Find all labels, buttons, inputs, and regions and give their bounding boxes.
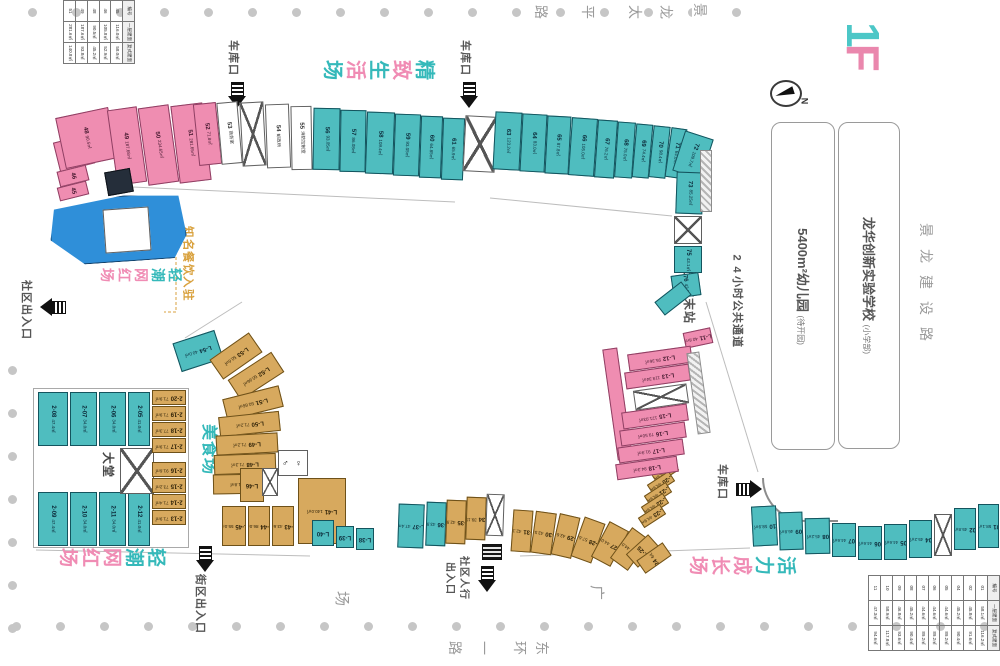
unit-2-08: 2-0847.4㎡: [38, 392, 68, 446]
unit-number: L-45: [235, 523, 246, 529]
unit-L-38: L-38: [356, 528, 374, 550]
table-cell: 02: [964, 576, 976, 601]
road-dot: [732, 8, 741, 17]
flow-label-char: 人: [458, 578, 468, 588]
unit-number: 2-14: [171, 499, 183, 505]
unit-66: 66105.0㎡: [568, 117, 598, 177]
table-cell: 187.6㎡: [75, 22, 87, 43]
unit-number: 51: [186, 129, 193, 136]
flow-label-char: 出: [444, 562, 454, 572]
flow-label-char: 口: [194, 622, 205, 633]
unit-number: 04: [925, 536, 932, 542]
flow-label-char: 车: [716, 464, 727, 475]
unit-area: 93.05㎡: [404, 141, 409, 157]
road-name-top: 平: [580, 4, 596, 20]
unit-number: 64: [531, 132, 537, 139]
road-name-bottom: 环: [512, 640, 528, 656]
unit-number: L-24: [652, 557, 664, 571]
unit-number: 46: [69, 172, 76, 180]
flow-label-char: 行: [458, 589, 468, 599]
zone-label-char: 通: [731, 324, 742, 335]
unit-65: 6587.8㎡: [544, 115, 571, 174]
unit-area: 47.4㎡: [51, 519, 56, 532]
unit-area: 44.6㎡: [859, 541, 872, 546]
zone-label-char: 轻: [168, 268, 182, 282]
unit-number: 48: [82, 127, 89, 135]
unit-number: L-49: [248, 440, 261, 447]
unit-area: 95.36㎡: [645, 356, 661, 363]
unit-55: 55消防控制室: [290, 106, 312, 170]
unit-area: 71.4㎡: [155, 499, 168, 504]
area-table-top_left: 编号一层建面复式建面45116.0㎡58.0㎡46105.8㎡52.9㎡4890…: [63, 0, 135, 64]
unit-number: 2-20: [171, 395, 183, 401]
unit-area: 64.85㎡: [428, 143, 433, 159]
zone-label-char: 场: [322, 60, 342, 80]
table-cell: 58.0㎡: [111, 43, 123, 64]
building-shape: [674, 216, 702, 244]
building-shape: [482, 544, 502, 560]
zone-label-char: 站: [683, 311, 695, 323]
table-cell: 140.8㎡: [64, 43, 76, 64]
table-header: 一层建面: [988, 601, 1000, 626]
zone-label-char: 2: [731, 254, 742, 260]
road-dot: [8, 366, 17, 375]
unit-area: 邮政所: [276, 134, 281, 148]
unit-area: 46.8㎡: [780, 529, 793, 534]
unit-2-17: 2-1771.9㎡: [152, 438, 186, 453]
flow-label-block-gate-bottom: 街区出入口: [194, 574, 205, 633]
unit-number: L-17: [652, 446, 665, 454]
road-dot: [804, 622, 813, 631]
table-cell: 93.6㎡: [892, 626, 904, 651]
unit-number: L-46: [246, 482, 258, 488]
unit-L-43: L-4343.6㎡: [272, 506, 294, 546]
zone-label-char: 小: [731, 276, 742, 287]
unit-area: 71.2㎡: [236, 422, 250, 428]
zone-label-qingchao-lower: 轻潮网红场: [58, 548, 165, 567]
road-name-right: 路: [918, 326, 934, 342]
zone-label-char: 成: [732, 556, 751, 575]
unit-number: 07: [848, 537, 855, 543]
table-cell: 45.2㎡: [904, 601, 916, 626]
table-cell: 52.9㎡: [99, 43, 111, 64]
unit-area: 123.2㎡: [505, 137, 510, 153]
unit-area: 43.1㎡: [686, 257, 691, 270]
flow-label-char: 入: [20, 316, 31, 327]
unit-area: 87.8㎡: [555, 143, 560, 156]
zone-label-char: 美: [200, 424, 216, 440]
zone-label-char: 场: [58, 548, 77, 567]
unit-L-34: L-3439.15㎡: [465, 497, 486, 541]
unit-number: 45: [69, 187, 76, 195]
unit-area: 41.0㎡: [137, 519, 142, 532]
unit-number: L-18: [648, 463, 661, 471]
unit-area: 86.0㎡: [248, 524, 258, 529]
unit-number: 2-17: [171, 443, 183, 449]
unit-number: 49: [122, 132, 129, 139]
unit-54: 54邮政所: [265, 104, 291, 169]
zone-label-char: 网: [134, 268, 148, 282]
unit-number: 2-05: [136, 405, 142, 417]
road-dot: [292, 8, 301, 17]
unit-area: 39.15㎡: [465, 516, 477, 521]
unit-number: L-15: [659, 411, 672, 419]
unit-area: 71.9㎡: [155, 443, 168, 448]
unit-06: 0644.6㎡: [858, 526, 882, 560]
unit-number: 06: [874, 540, 881, 546]
road-dot: [8, 452, 17, 461]
unit-area: 187.68㎡: [124, 141, 131, 160]
table-cell: 117.8㎡: [880, 626, 892, 651]
table-cell: 93.8㎡: [75, 43, 87, 64]
flow-label-char: 车: [227, 40, 238, 51]
building-shape: [239, 101, 266, 166]
unit-number: 66: [580, 135, 586, 142]
unit-area: 43.5㎡: [530, 529, 543, 535]
road-name-bottom: 东: [534, 640, 550, 656]
zone-label-char: 轻: [146, 548, 165, 567]
unit-number: 72: [692, 142, 700, 150]
unit-number: 2-19: [171, 411, 183, 417]
unit-number: 70: [657, 141, 664, 148]
building-shape: [485, 494, 504, 537]
school-sublabel: (小学部): [862, 325, 871, 354]
school-block: 龙华创新实验学校 (小学部): [838, 122, 900, 449]
unit-area: 86.08㎡: [351, 137, 356, 153]
unit-area: 74.4㎡: [639, 149, 645, 163]
unit-area: 45.8㎡: [954, 527, 967, 532]
unit-area: 85.25㎡: [687, 189, 692, 205]
road-dot: [408, 622, 417, 631]
unit-area: 93.05㎡: [324, 135, 329, 151]
unit-area: 119.34㎡: [641, 374, 659, 381]
zone-label-huoli-chengzhang: 活力成长场: [688, 556, 795, 575]
flow-label-char: 口: [20, 328, 31, 339]
arrow-down-icon: [196, 546, 214, 572]
flow-label-char: 区: [20, 292, 31, 303]
floor-logo-f: F: [837, 44, 889, 68]
zone-label-char: 入: [181, 276, 193, 288]
unit-area: 71.2㎡: [233, 442, 246, 447]
unit-area: 42.9㎡: [445, 519, 455, 524]
table-cell: 58.9㎡: [880, 601, 892, 626]
zone-label-char: 堂: [102, 465, 114, 477]
flow-label-pedestrian-gate-2: 出入口: [444, 562, 454, 594]
table-cell: 05: [940, 576, 952, 601]
unit-area: 77.3㎡: [155, 427, 168, 432]
zone-label-char: 潮: [151, 268, 165, 282]
road-name-right: 设: [918, 300, 934, 316]
unit-area: 71.9㎡: [155, 411, 168, 416]
unit-number: L-44: [260, 523, 270, 529]
table-cell: 10: [880, 576, 892, 601]
unit-59: 5993.05㎡: [393, 114, 421, 177]
unit-area: 45.2㎡: [910, 537, 923, 542]
unit-L-44: L-4486.0㎡: [248, 506, 270, 546]
floor-logo-1: 1: [837, 22, 889, 44]
table-cell: 45: [111, 1, 123, 22]
building-shape: [686, 351, 710, 434]
unit-number: 2-11: [110, 506, 116, 518]
table-cell: 94.6㎡: [869, 626, 881, 651]
unit-02: 0245.8㎡: [954, 508, 976, 550]
unit-number: L-11: [699, 332, 712, 340]
flow-label-char: 出: [194, 598, 205, 609]
unit-area: 58.9㎡: [753, 524, 766, 529]
road-dot: [600, 8, 609, 17]
table-cell: 281.6㎡: [64, 22, 76, 43]
road-dot: [232, 622, 241, 631]
unit-area: 65.9㎡: [450, 147, 455, 160]
flow-label-char: 口: [444, 584, 454, 594]
road-name-bottom: 一: [476, 640, 492, 656]
table-cell: 11: [869, 576, 881, 601]
unit-57: 5786.08㎡: [339, 110, 366, 172]
table-header: 编号: [988, 576, 1000, 601]
zone-label-char: 4: [731, 266, 742, 272]
road-name-top: 太: [627, 4, 643, 20]
unit-number: L-39: [339, 534, 351, 540]
table-cell: 89.2㎡: [940, 626, 952, 651]
zone-label-char: 场: [688, 556, 707, 575]
unit-area: 40.6㎡: [684, 336, 698, 343]
unit-area: 47.4㎡: [51, 419, 56, 432]
unit-area: 45.2㎡: [806, 534, 819, 539]
unit-60: 6064.85㎡: [419, 116, 443, 179]
flow-label-community-gate-left: 社区出入口: [20, 280, 31, 339]
unit-area: 83.0㎡: [531, 141, 536, 154]
unit-number: 55: [298, 122, 304, 129]
table-cell: 04: [952, 576, 964, 601]
unit-2-18: 2-1877.3㎡: [152, 422, 186, 437]
unit-number: L-43: [284, 523, 294, 529]
unit-53: 53商务室: [216, 101, 242, 165]
unit-area: 76.2㎡: [603, 147, 608, 161]
unit-area: 84.3㎡: [633, 466, 647, 472]
unit-61: 6165.9㎡: [441, 118, 465, 181]
unit-area: 109.7㎡: [687, 151, 696, 167]
zone-label-char: 时: [731, 288, 742, 299]
unit-10: 1058.9㎡: [751, 505, 778, 546]
zone-label-char: 长: [710, 556, 729, 575]
road-dot: [644, 8, 653, 17]
table-cell: 44.6㎡: [940, 601, 952, 626]
flow-label-char: 出: [20, 304, 31, 315]
flow-label-char: 口: [227, 64, 238, 75]
arrow-left-icon: [40, 298, 66, 316]
arrow-down-icon: [460, 82, 478, 108]
unit-number: 59: [404, 133, 410, 140]
table-cell: 46: [99, 1, 111, 22]
unit-number: 2-06: [110, 405, 116, 417]
unit-area: 71.3㎡: [231, 462, 244, 467]
unit-area: 55.0㎡: [222, 524, 233, 529]
zone-label-char: 共: [731, 312, 742, 323]
unit-area: 75.0㎡: [622, 148, 627, 162]
road-name-top: 路: [533, 4, 549, 20]
plaza-label: 场: [333, 590, 350, 607]
road-dot: [8, 624, 17, 633]
unit-number: L-52: [257, 365, 271, 377]
unit-number: 08: [822, 533, 829, 539]
table-cell: 48: [87, 1, 99, 22]
unit-area: 50.66㎡: [242, 374, 258, 386]
zone-label-char: 活: [345, 60, 365, 80]
table-cell: 89.2㎡: [928, 626, 940, 651]
school-label: 龙华创新实验学校: [861, 217, 876, 321]
zone-label-jingzhi-shenghuo: 精致生活场: [322, 60, 434, 80]
unit-09: 0946.8㎡: [778, 512, 803, 551]
road-dot: [512, 8, 521, 17]
road-name-right: 建: [918, 274, 934, 290]
zone-label-char: 红: [80, 548, 99, 567]
unit-L-45: L-4555.0㎡: [222, 506, 246, 546]
unit-number: 63: [505, 129, 511, 136]
table-cell: 44.6㎡: [928, 601, 940, 626]
table-cell: 90.5㎡: [87, 22, 99, 43]
plaza-label: 广: [588, 584, 605, 601]
unit-number: 2-16: [171, 467, 183, 473]
road-dot: [8, 495, 17, 504]
unit-area: 41.0㎡: [137, 419, 142, 432]
table-cell: 45.2㎡: [952, 601, 964, 626]
table-cell: 90.4㎡: [904, 626, 916, 651]
unit-2-19: 2-1971.9㎡: [152, 406, 186, 421]
road-name-right: 龙: [918, 248, 934, 264]
unit-L-40: L-40: [312, 520, 334, 546]
zone-label-char: 红: [117, 268, 131, 282]
unit-2-20: 2-2071.9㎡: [152, 390, 186, 405]
unit-2-05: 2-0541.0㎡: [128, 392, 150, 446]
building-shape: [262, 468, 278, 496]
building-shape: [934, 514, 952, 556]
road-dot: [336, 8, 345, 17]
unit-area: 消防控制室: [299, 131, 304, 154]
zone-label-char: 致: [391, 60, 411, 80]
building-shape: [120, 448, 154, 494]
compass-icon: [770, 80, 802, 107]
road-dot: [556, 8, 565, 17]
road-dot: [380, 8, 389, 17]
unit-number: 01: [993, 523, 999, 529]
unit-75: 7543.1㎡: [674, 246, 702, 273]
compass-north-label: N: [799, 98, 809, 105]
unit-2-13: 2-1371.9㎡: [152, 510, 186, 525]
zone-label-qingchao-upper: 轻潮网红场: [100, 268, 182, 282]
table-header: 复式建面: [123, 43, 135, 64]
road-dot: [144, 622, 153, 631]
unit-number: L-54: [198, 344, 212, 354]
road-dot: [496, 622, 505, 631]
unit-number: 61: [450, 138, 456, 145]
table-header: 编号: [123, 1, 135, 22]
road-dot: [276, 622, 285, 631]
road-dot: [248, 8, 257, 17]
table-cell: 89.2㎡: [916, 626, 928, 651]
unit-63: 63123.2㎡: [493, 111, 523, 170]
restroom-icon: ♂ ♀: [278, 450, 308, 476]
kindergarten-sublabel: (待开园): [796, 315, 805, 344]
unit-number: L-37: [412, 523, 424, 529]
unit-area: 91.9㎡: [637, 449, 651, 455]
unit-area: 50.6㎡: [223, 354, 236, 365]
unit-area: 281.65㎡: [188, 138, 195, 157]
unit-area: 109.4㎡: [377, 139, 382, 155]
unit-area: 90.5㎡: [84, 135, 91, 149]
unit-area: 44.6㎡: [885, 540, 898, 545]
road-name-top: 龙: [658, 4, 674, 20]
unit-2-14: 2-1471.4㎡: [152, 494, 186, 509]
unit-number: L-12: [662, 353, 675, 361]
table-cell: 06: [928, 576, 940, 601]
unit-area: 71.8㎡: [205, 131, 211, 145]
unit-number: 73: [687, 181, 693, 188]
unit-number: 2-10: [81, 505, 87, 517]
road-dot: [100, 622, 109, 631]
road-name-right: 景: [918, 222, 934, 238]
unit-number: 56: [324, 127, 330, 134]
building-shape: [104, 168, 134, 196]
unit-2-09: 2-0947.4㎡: [38, 492, 68, 546]
road-dot: [848, 622, 857, 631]
unit-number: L-16: [655, 429, 668, 437]
zone-label-char: 驻: [181, 289, 193, 301]
compass-needle-icon: [774, 86, 795, 99]
flow-label-char: 街: [194, 574, 205, 585]
table-cell: 58.1㎡: [976, 601, 988, 626]
floor-logo: 1F: [828, 12, 898, 78]
unit-L-35: L-3542.9㎡: [445, 500, 467, 545]
unit-64: 6483.0㎡: [519, 113, 547, 172]
unit-number: 65: [555, 134, 561, 141]
unit-2-16: 2-1691.6㎡: [152, 462, 186, 477]
zone-label-char: 精: [414, 60, 434, 80]
road-dot: [716, 622, 725, 631]
unit-area: 58.1㎡: [978, 524, 991, 529]
zone-label-char: 大: [102, 452, 114, 464]
arrow-right-icon: [736, 480, 762, 498]
arrow-down-icon: [478, 566, 496, 592]
kindergarten-block: 5400m²幼儿园 (待开园): [771, 122, 835, 450]
unit-area: 34.0㎡: [81, 419, 86, 432]
table-cell: 90.4㎡: [952, 626, 964, 651]
flow-label-pedestrian-gate-1: 社区人行: [458, 556, 468, 599]
unit-number: 09: [795, 528, 802, 534]
unit-area: 44.9㎡: [639, 514, 653, 525]
unit-area: 43.9㎡: [425, 521, 435, 526]
road-dot: [584, 622, 593, 631]
unit-number: L-53: [235, 346, 249, 358]
zone-label-char: 道: [731, 336, 742, 347]
unit-area: 91.6㎡: [155, 467, 168, 472]
table-cell: 45.2㎡: [87, 43, 99, 64]
table-cell: 91.6㎡: [964, 626, 976, 651]
flow-label-char: 区: [458, 567, 468, 577]
unit-L-46: L-46: [240, 468, 264, 502]
unit-area: 34.0㎡: [110, 519, 115, 532]
flow-label-char: 区: [194, 586, 205, 597]
flow-label-char: 口: [716, 488, 727, 499]
unit-number: 58: [377, 131, 383, 138]
flow-label-char: 社: [458, 556, 468, 566]
unit-L-36: L-3643.9㎡: [425, 502, 447, 547]
unit-L-39: L-39: [336, 526, 354, 548]
table-cell: 46.8㎡: [892, 601, 904, 626]
unit-area: 234.65㎡: [156, 140, 163, 159]
area-table-bottom_right: 编号一层建面复式建面0158.1㎡116.2㎡0245.8㎡91.6㎡0445.…: [868, 575, 1000, 651]
road-dot: [628, 622, 637, 631]
flow-label-garage-top-left: 车库口: [227, 40, 238, 75]
